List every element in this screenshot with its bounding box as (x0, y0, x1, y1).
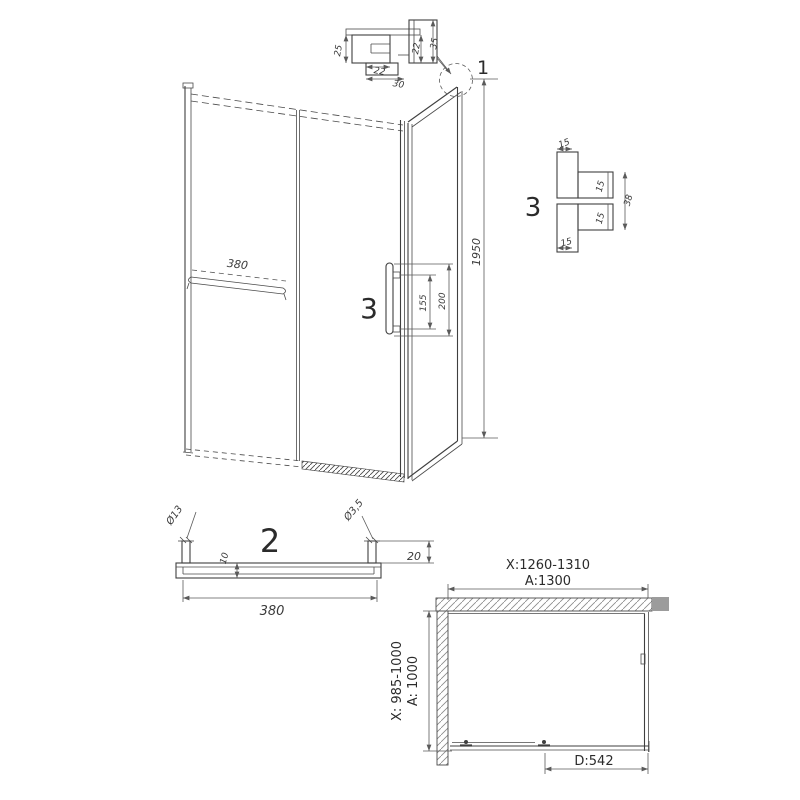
hole-diameter-label: Ø3,5 (341, 497, 366, 524)
shower-enclosure-drawing: 380 3 155 200 1950 1 (0, 0, 800, 800)
detail-1-dim-right-outer: 35 (429, 37, 441, 50)
plan-width-range-label: X:1260-1310 (506, 558, 590, 573)
plan-width-nominal-label: A:1300 (525, 574, 571, 589)
top-wall (436, 597, 669, 614)
sliding-door (450, 740, 649, 752)
top-rail-hidden-lines (191, 94, 403, 131)
bar-diameter-label: Ø13 (163, 503, 185, 528)
detail-1-dim-bottom-inner: 22 (373, 66, 386, 78)
right-glass-wall (641, 612, 649, 752)
detail-1-callout-circle (437, 56, 473, 97)
detail-1-callout-label: 1 (477, 57, 489, 79)
handle-outer-dim-label: 200 (438, 292, 448, 309)
bar-length-label: 380 (260, 604, 285, 619)
detail-1-dim-right-inner: 22 (411, 42, 423, 55)
detail-3-dim-overall: 38 (623, 193, 636, 207)
plan-depth-range-label: X: 985-1000 (390, 641, 405, 721)
detail-3-dim-bottom: 15 (560, 237, 574, 250)
detail-1-dim-left: 25 (333, 44, 345, 57)
handle-inner-dim-label: 155 (419, 294, 429, 311)
detail-3-label: 3 (525, 193, 542, 223)
technical-drawing-page: 380 3 155 200 1950 1 (0, 0, 800, 800)
handle-callout-label: 3 (360, 292, 378, 325)
plan-depth-nominal-label: A: 1000 (406, 656, 421, 706)
detail-1-section: 25 22 30 22 35 (333, 20, 447, 91)
door-roller (538, 740, 550, 746)
bar-body (176, 563, 381, 578)
end-offset-label: 20 (407, 550, 421, 563)
right-frame-column (401, 120, 413, 480)
detail-3-section: 3 15 15 38 15 15 (525, 137, 636, 252)
detail-3-dim-lower-right: 15 (595, 211, 608, 225)
view-2-label: 2 (260, 522, 280, 560)
side-panel-edges (408, 87, 462, 481)
left-wall (437, 611, 448, 765)
plan-door-width-label: D:542 (574, 754, 613, 769)
bottom-track (186, 449, 404, 482)
height-dimension-label: 1950 (470, 238, 483, 266)
plan-view: X:1260-1310 A:1300 (390, 558, 669, 774)
left-frame-profile (183, 83, 193, 453)
door-handle (386, 263, 400, 334)
detail-3-dim-upper-right: 15 (595, 179, 608, 193)
towel-bar (187, 270, 286, 300)
detail-1-profile-shapes (346, 20, 437, 75)
detail-3-profile-shapes (557, 152, 613, 252)
towel-bar-top-view: 2 Ø13 Ø3 (163, 497, 434, 619)
towel-bar-length-label: 380 (226, 257, 248, 272)
detail-1-dim-bottom-outer: 30 (392, 79, 405, 91)
center-glass-divider (297, 110, 300, 461)
front-view: 380 3 155 200 1950 1 (183, 56, 498, 482)
